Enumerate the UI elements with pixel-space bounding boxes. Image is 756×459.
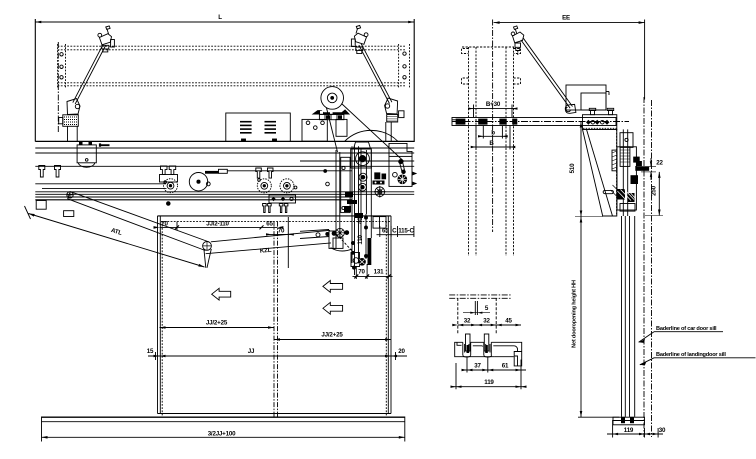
svg-text:70: 70: [358, 269, 365, 276]
svg-text:Baderline of car door sill: Baderline of car door sill: [656, 326, 717, 332]
svg-text:b: b: [491, 129, 495, 136]
svg-text:510: 510: [569, 163, 576, 173]
svg-text:61: 61: [502, 362, 509, 369]
svg-text:B+30: B+30: [486, 101, 501, 108]
svg-text:ATL: ATL: [110, 227, 123, 237]
svg-text:B: B: [489, 140, 494, 147]
svg-text:JJ: JJ: [248, 348, 255, 355]
svg-text:C: C: [392, 228, 397, 235]
svg-text:115-C: 115-C: [398, 228, 414, 235]
svg-text:JJ/2+25: JJ/2+25: [321, 332, 343, 339]
svg-text:22: 22: [656, 160, 663, 167]
svg-text:119: 119: [624, 427, 634, 434]
svg-text:L: L: [218, 14, 222, 21]
svg-text:70: 70: [278, 228, 285, 235]
svg-text:3/2JJ+100: 3/2JJ+100: [208, 431, 236, 438]
svg-text:20: 20: [398, 348, 405, 355]
svg-text:131: 131: [374, 269, 384, 276]
svg-text:KZL: KZL: [260, 247, 272, 255]
svg-text:5: 5: [485, 305, 489, 312]
svg-text:32: 32: [483, 317, 490, 324]
svg-text:32: 32: [464, 317, 471, 324]
svg-text:45: 45: [505, 317, 512, 324]
svg-text:37: 37: [474, 362, 481, 369]
svg-text:Baderline of landingdoor sill: Baderline of landingdoor sill: [656, 352, 726, 358]
svg-text:110: 110: [357, 234, 364, 244]
svg-text:40: 40: [357, 217, 364, 224]
svg-text:JJ/2+25: JJ/2+25: [206, 320, 228, 327]
svg-text:Net dooropening height HH: Net dooropening height HH: [572, 280, 578, 348]
svg-text:EE: EE: [562, 15, 570, 22]
svg-text:30: 30: [659, 427, 666, 434]
svg-text:15: 15: [147, 348, 154, 355]
svg-text:119: 119: [484, 379, 494, 386]
